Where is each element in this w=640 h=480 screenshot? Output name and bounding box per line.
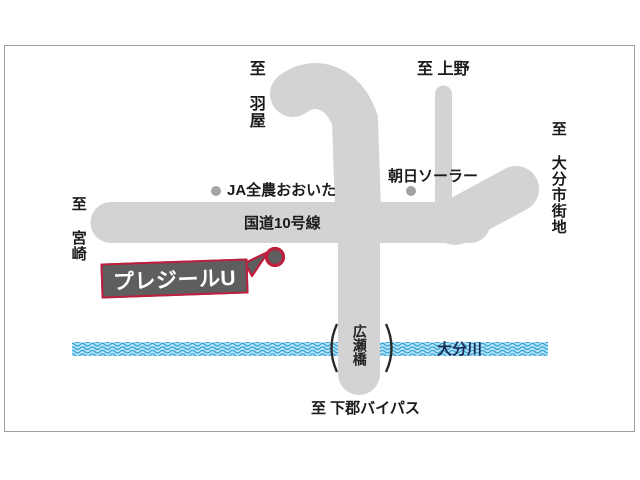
landmark-ja-zennoh: JA全農おおいた [227, 183, 336, 199]
asahi-solar-dot [406, 186, 416, 196]
route10-label: 国道10号線 [244, 216, 321, 232]
destination-shimogori-bypass: 至 下郡バイパス [311, 401, 420, 417]
destination-ueno: 至 上野 [417, 62, 469, 79]
destination-miyazaki: 至 宮崎 [70, 196, 86, 262]
destination-haneya: 至 羽屋 [246, 60, 263, 129]
ja-zennoh-dot [211, 186, 221, 196]
callout-pointer [245, 252, 268, 276]
hirose-bridge-label: 広瀬橋 [352, 324, 367, 366]
river-name-label: 大分川 [437, 342, 482, 358]
callout-label: プレジールU [112, 261, 236, 295]
access-map: 至 羽屋 至 上野 至 大分市街地 至 宮崎 至 下郡バイパス JA全農おおいた… [0, 0, 640, 480]
landmark-asahi-solar: 朝日ソーラー [388, 169, 478, 185]
oita-city-road [455, 189, 516, 222]
destination-oita-city: 至 大分市街地 [550, 121, 566, 235]
location-dot [267, 249, 284, 266]
callout-box: プレジールU [100, 258, 248, 298]
